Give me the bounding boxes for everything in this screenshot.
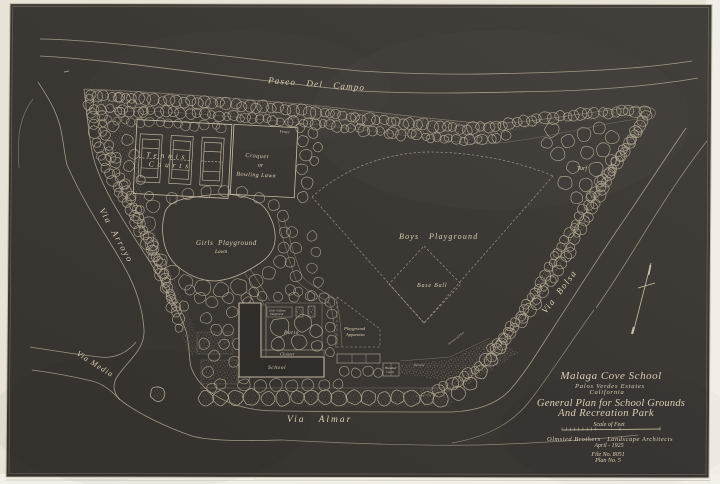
svg-text:Berberis: Berberis [414,363,425,367]
svg-text:California: California [589,389,624,396]
svg-text:Lawn: Lawn [214,249,227,255]
svg-text:Croquet: Croquet [245,153,269,160]
svg-text:Malaga Cove School: Malaga Cove School [559,370,661,382]
svg-text:Base Ball: Base Ball [417,283,447,289]
svg-text:Olmsted Brothers Landscape A: Olmsted Brothers Landscape Architects [547,436,673,443]
svg-text:Scale of Feet: Scale of Feet [593,421,625,428]
svg-text:Boys Playground: Boys Playground [399,232,478,241]
svg-text:Girls Playground: Girls Playground [196,239,257,247]
svg-text:Courts: Courts [386,370,395,374]
svg-text:Via Almar: Via Almar [287,415,352,425]
svg-text:Turf: Turf [577,165,588,172]
svg-text:Playground: Playground [269,313,284,316]
svg-text:And Recreation Park: And Recreation Park [557,408,654,419]
svg-text:Playground: Playground [343,326,366,331]
svg-text:or: or [258,163,264,169]
svg-text:Patio: Patio [283,330,299,336]
svg-text:Cloister: Cloister [280,352,295,357]
svg-text:Apparatus: Apparatus [345,332,365,337]
svg-text:School: School [268,365,286,371]
svg-text:Fence: Fence [279,129,290,135]
svg-text:Plan No. 5: Plan No. 5 [594,458,621,464]
svg-text:April - 1925: April - 1925 [593,443,623,449]
